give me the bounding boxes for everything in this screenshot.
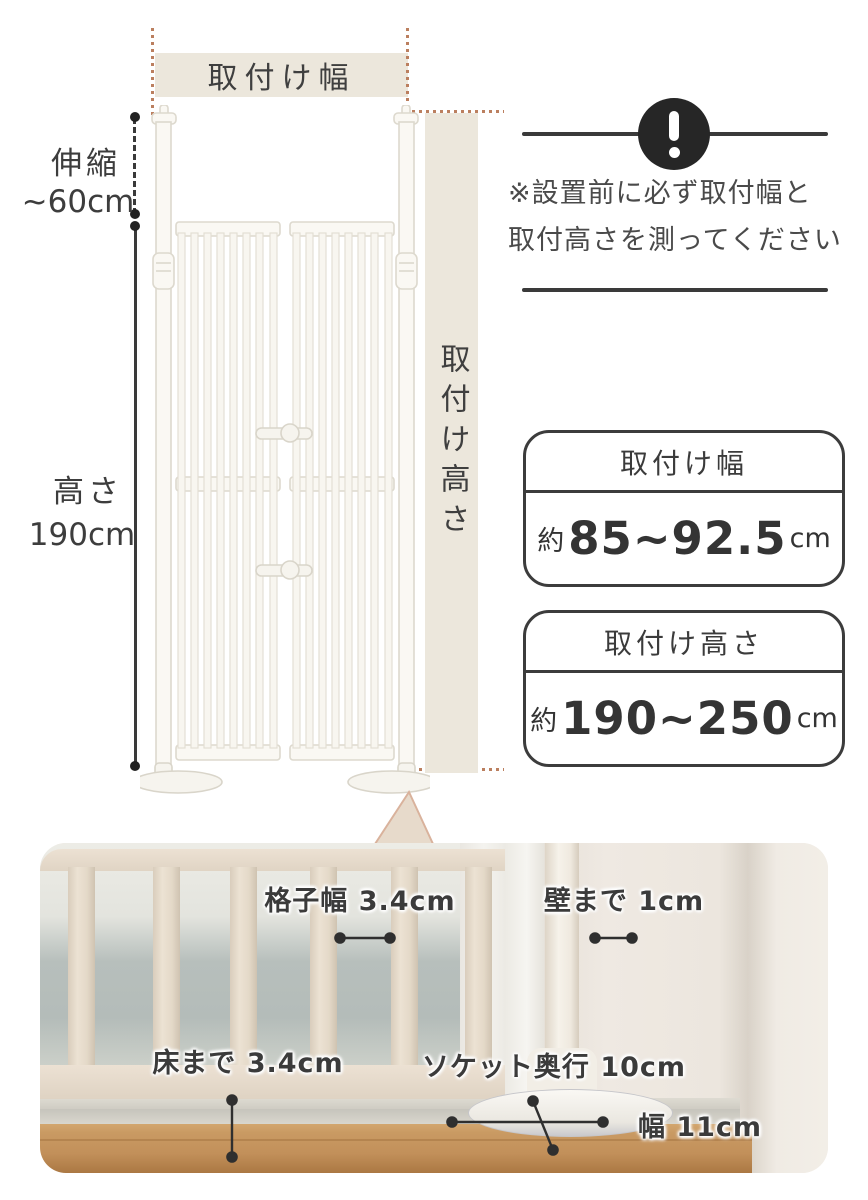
mounting-height-band: 取付け高さ (425, 113, 478, 773)
label-to-wall: 壁まで 1cm (514, 879, 734, 918)
value-unit: cm (797, 703, 838, 734)
closeup-photo: 格子幅 3.4cm 壁まで 1cm 床まで 3.4cm ソケット奥行 10cm … (40, 843, 828, 1173)
height-value: 190cm (26, 517, 138, 553)
gate-bars (178, 233, 392, 748)
value-number: 190~250 (561, 692, 794, 745)
label-lattice-width: 格子幅 3.4cm (248, 879, 472, 918)
exclamation-icon (638, 98, 710, 170)
measure-dot (130, 221, 140, 231)
spec-box-title: 取付け幅 (526, 433, 842, 493)
value-unit: cm (790, 523, 831, 554)
label-socket-width: 幅 11cm (610, 1105, 790, 1144)
gate-illustration (140, 105, 430, 805)
value-prefix: 約 (537, 519, 564, 558)
product-dimension-infographic: 取付け幅 取付け高さ (0, 0, 868, 1200)
notice-line-1: ※設置前に必ず取付幅と (508, 170, 858, 217)
spec-box-value: 約 85~92.5 cm (526, 493, 842, 584)
spec-box-title: 取付け高さ (526, 613, 842, 673)
photo-pointer-triangle (370, 789, 438, 845)
extension-label: 伸縮 (36, 138, 136, 183)
value-number: 85~92.5 (568, 512, 786, 565)
spec-box-value: 約 190~250 cm (526, 673, 842, 764)
photo-gate-bar (68, 867, 95, 1071)
mounting-height-band-label: 取付け高さ (430, 343, 474, 543)
photo-gate-rail-top (40, 849, 505, 871)
spec-box-mounting-height: 取付け高さ 約 190~250 cm (523, 610, 845, 767)
tension-pole-right (399, 122, 414, 782)
mounting-width-band-label: 取付け幅 (208, 53, 356, 97)
gate-latch-lower-knob (281, 561, 299, 579)
notice-text: ※設置前に必ず取付幅と 取付高さを測ってください (508, 170, 858, 264)
measure-dot (130, 761, 140, 771)
dotted-guide-left (151, 28, 154, 116)
tension-pole-left (156, 122, 171, 782)
notice-line-2: 取付高さを測ってください (508, 217, 858, 264)
height-measure-line (134, 224, 137, 764)
value-prefix: 約 (530, 699, 557, 738)
gate-latch-upper-knob (281, 424, 299, 442)
height-label: 高さ (44, 466, 132, 511)
gate-foot-left (140, 771, 222, 793)
measure-dot (130, 112, 140, 122)
spec-box-mounting-width: 取付け幅 約 85~92.5 cm (523, 430, 845, 587)
mounting-width-band: 取付け幅 (155, 53, 408, 97)
label-to-floor: 床まで 3.4cm (136, 1041, 360, 1080)
label-socket-depth: ソケット奥行 10cm (402, 1045, 706, 1084)
notice-rule-bottom (522, 288, 828, 292)
extension-value: ~60cm (18, 184, 138, 220)
